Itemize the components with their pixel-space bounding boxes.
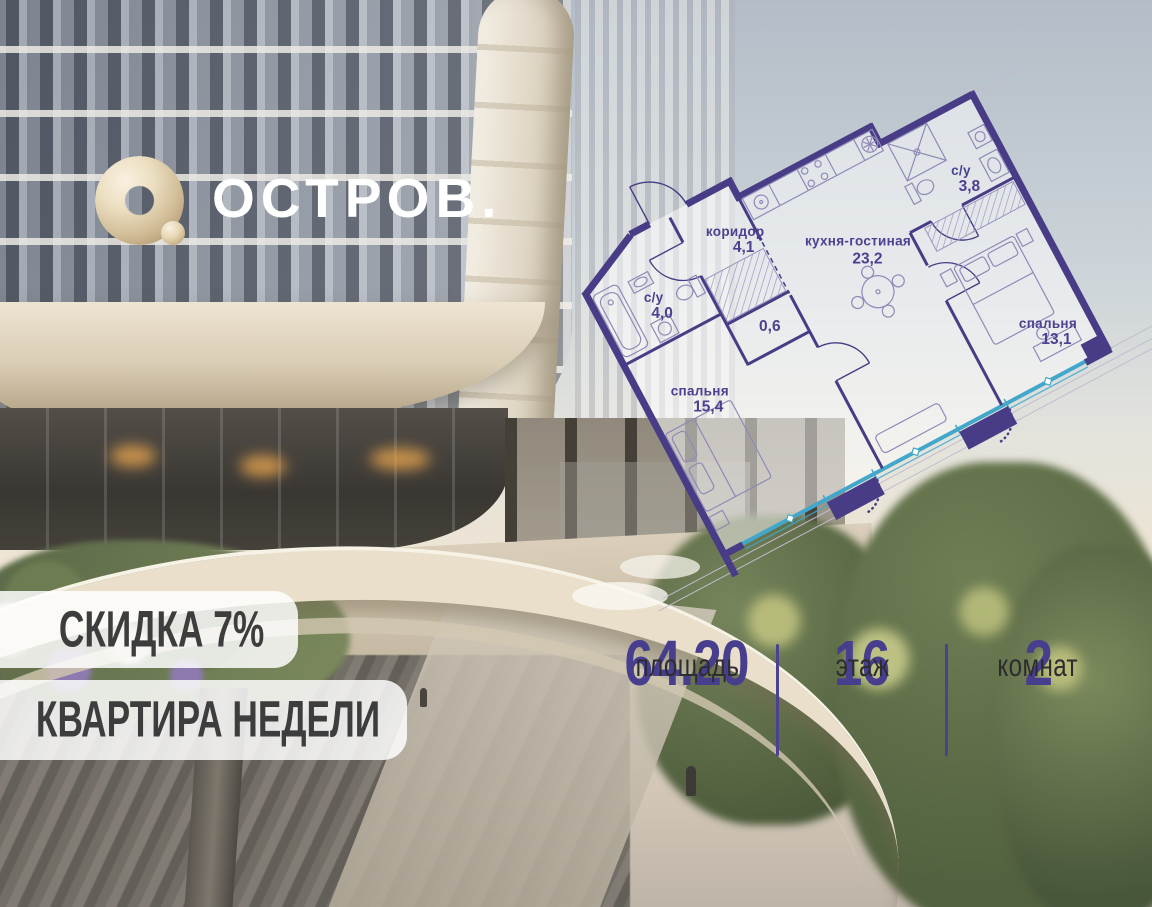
label-su-left-area: 4,0 [651, 305, 673, 322]
label-su-top: с/у [951, 163, 971, 178]
label-bedroom-right-area: 13,1 [1041, 331, 1072, 348]
label-bedroom-right: спальня [1019, 316, 1077, 331]
logo-wordmark: ОСТРОВ. [212, 171, 502, 226]
stats-divider [776, 644, 779, 756]
label-bedroom-left-area: 15,4 [693, 398, 724, 415]
label-closet-area: 0,6 [759, 318, 781, 335]
discount-badge: СКИДКА 7% [0, 591, 298, 668]
label-su-left: с/у [644, 290, 664, 305]
stat-area-label: площадь [635, 648, 739, 685]
stat-floor-label: этаж [835, 648, 889, 685]
label-kitchen: кухня-гостиная [805, 234, 911, 249]
apartment-of-week-label: КВАРТИРА НЕДЕЛИ [36, 691, 380, 749]
label-bedroom-left: спальня [671, 383, 729, 398]
apartment-stats: 64.20 площадь 16 этаж 2 комнат [598, 634, 1146, 769]
apartment-promo-banner[interactable]: коридор 4,1 с/у 4,0 0,6 спальня 15,4 кух… [0, 0, 1152, 907]
label-su-top-area: 3,8 [959, 178, 981, 195]
logo-dot-icon [161, 221, 185, 245]
stat-rooms-label: комнат [998, 648, 1079, 685]
discount-badge-label: СКИДКА 7% [59, 600, 264, 658]
apartment-of-week-badge: КВАРТИРА НЕДЕЛИ [0, 680, 407, 760]
label-koridor-area: 4,1 [733, 239, 755, 256]
floorplan: коридор 4,1 с/у 4,0 0,6 спальня 15,4 кух… [0, 0, 1152, 907]
label-kitchen-area: 23,2 [852, 250, 882, 267]
stats-divider [945, 644, 948, 756]
label-koridor: коридор [706, 224, 765, 239]
